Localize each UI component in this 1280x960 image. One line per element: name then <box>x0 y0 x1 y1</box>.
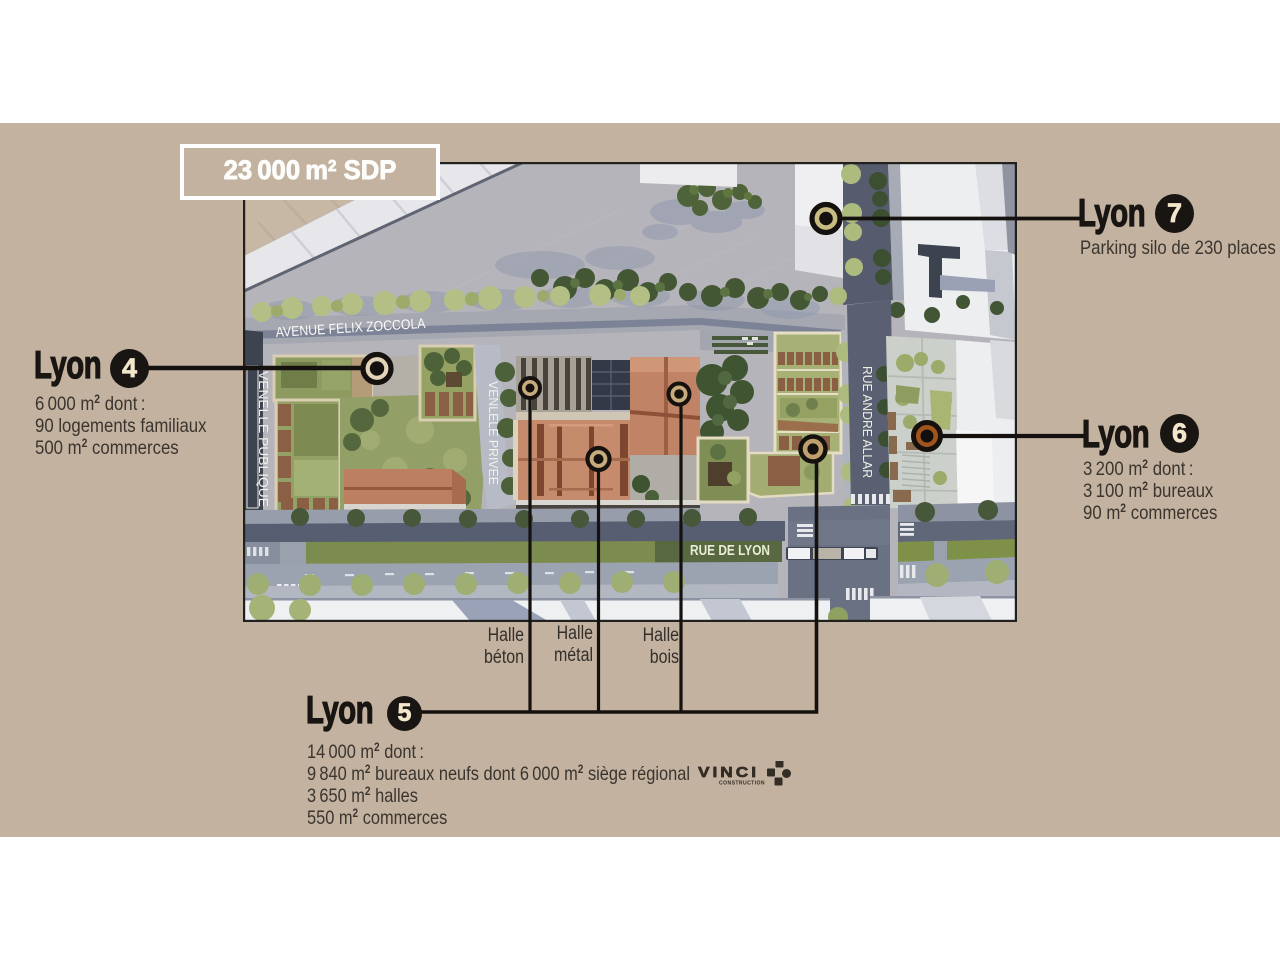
svg-text:VINCI: VINCI <box>698 764 759 781</box>
svg-text:CONSTRUCTION: CONSTRUCTION <box>719 781 765 787</box>
